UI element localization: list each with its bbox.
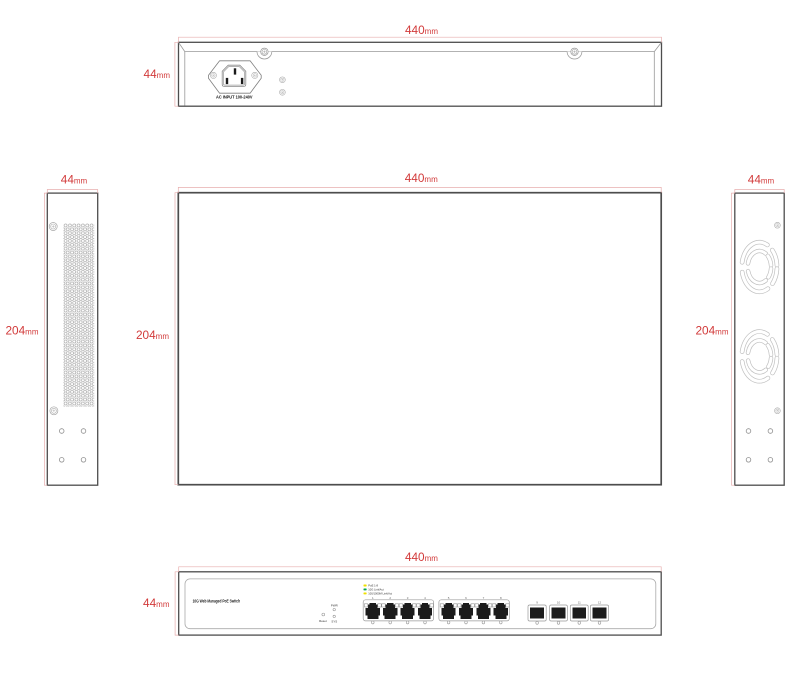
svg-text:100/1000M Link/Act: 100/1000M Link/Act xyxy=(368,591,392,595)
svg-text:10: 10 xyxy=(557,601,561,605)
svg-text:PoE 1-8: PoE 1-8 xyxy=(368,584,378,588)
svg-text:12: 12 xyxy=(598,601,602,605)
svg-text:PWR: PWR xyxy=(331,603,338,607)
svg-text:AC INPUT 100-240V: AC INPUT 100-240V xyxy=(216,95,253,100)
svg-text:10G Link/Act: 10G Link/Act xyxy=(368,587,384,591)
svg-text:SYS: SYS xyxy=(331,619,337,623)
svg-text:11: 11 xyxy=(578,601,581,605)
svg-text:10G Web Managed PoE Switch: 10G Web Managed PoE Switch xyxy=(193,598,241,603)
svg-text:Reset: Reset xyxy=(319,619,327,623)
